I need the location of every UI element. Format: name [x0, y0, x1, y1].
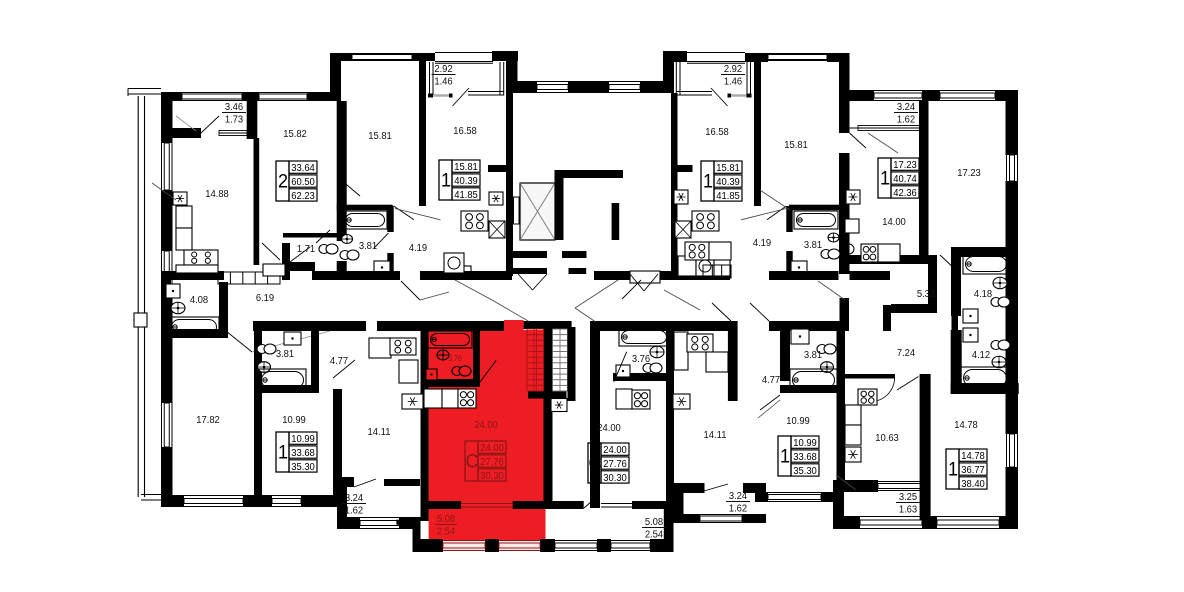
svg-text:14.11: 14.11 [704, 430, 727, 442]
svg-text:3.81: 3.81 [359, 241, 378, 253]
svg-text:4.08: 4.08 [190, 295, 209, 307]
svg-text:33.64: 33.64 [291, 163, 315, 175]
svg-text:30.30: 30.30 [603, 472, 627, 484]
svg-text:10.99: 10.99 [793, 438, 817, 450]
svg-text:16.58: 16.58 [705, 127, 729, 139]
svg-text:15.81: 15.81 [368, 131, 392, 143]
svg-text:3.25: 3.25 [899, 492, 918, 504]
svg-text:3.24: 3.24 [345, 493, 364, 505]
svg-text:4.12: 4.12 [972, 350, 991, 362]
svg-text:40.74: 40.74 [893, 173, 917, 185]
svg-text:6.19: 6.19 [256, 293, 275, 305]
svg-text:C: C [588, 452, 601, 474]
svg-text:1: 1 [780, 445, 790, 467]
svg-text:3.24: 3.24 [729, 491, 748, 503]
svg-text:1: 1 [278, 441, 288, 463]
svg-text:4.77: 4.77 [330, 356, 349, 368]
svg-text:40.39: 40.39 [454, 175, 478, 187]
svg-text:14.88: 14.88 [205, 189, 229, 201]
svg-text:15.81: 15.81 [784, 140, 808, 152]
svg-text:17.23: 17.23 [957, 168, 981, 180]
svg-text:1.46: 1.46 [724, 76, 743, 88]
svg-text:27.76: 27.76 [480, 456, 504, 468]
svg-text:30.30: 30.30 [480, 470, 504, 482]
svg-text:16.58: 16.58 [453, 126, 477, 138]
svg-text:24.00: 24.00 [480, 443, 504, 455]
svg-text:2.92: 2.92 [434, 64, 453, 76]
svg-text:42.36: 42.36 [893, 187, 917, 199]
svg-text:3.81: 3.81 [804, 240, 823, 252]
svg-text:41.85: 41.85 [716, 190, 740, 202]
svg-text:15.81: 15.81 [454, 162, 478, 174]
svg-text:14.11: 14.11 [368, 427, 391, 439]
svg-text:5.08: 5.08 [645, 517, 664, 529]
svg-text:2: 2 [278, 170, 288, 192]
svg-text:1.71: 1.71 [297, 244, 316, 256]
svg-text:2.54: 2.54 [437, 526, 456, 538]
svg-text:24.00: 24.00 [597, 423, 621, 435]
svg-text:17.23: 17.23 [893, 160, 917, 172]
svg-text:17.82: 17.82 [196, 415, 220, 427]
svg-text:10.63: 10.63 [875, 433, 899, 445]
svg-text:35.30: 35.30 [793, 465, 817, 477]
svg-text:1: 1 [880, 167, 890, 189]
svg-text:4.19: 4.19 [409, 243, 428, 255]
svg-text:36.77: 36.77 [961, 464, 985, 476]
svg-text:3.76: 3.76 [448, 354, 462, 363]
svg-text:4.77: 4.77 [762, 375, 781, 387]
svg-text:3.81: 3.81 [276, 349, 295, 361]
svg-text:5.33: 5.33 [917, 289, 936, 301]
svg-text:2.54: 2.54 [645, 529, 664, 541]
svg-text:1.62: 1.62 [729, 503, 748, 515]
svg-text:1.46: 1.46 [434, 76, 453, 88]
svg-text:3.81: 3.81 [804, 350, 823, 362]
svg-text:1.62: 1.62 [345, 505, 364, 517]
svg-text:15.81: 15.81 [716, 163, 740, 175]
svg-text:27.76: 27.76 [603, 458, 627, 470]
svg-text:33.68: 33.68 [793, 451, 817, 463]
svg-text:5.08: 5.08 [437, 514, 456, 526]
svg-text:3.24: 3.24 [897, 102, 916, 114]
svg-text:1: 1 [441, 169, 451, 191]
svg-text:1: 1 [948, 458, 958, 480]
svg-text:4.19: 4.19 [753, 238, 772, 250]
svg-text:24.00: 24.00 [474, 420, 498, 432]
svg-text:1: 1 [703, 170, 713, 192]
svg-text:14.78: 14.78 [961, 451, 985, 463]
svg-text:62.23: 62.23 [291, 190, 315, 202]
svg-text:1.62: 1.62 [897, 114, 916, 126]
svg-text:3.46: 3.46 [225, 102, 244, 114]
svg-text:15.82: 15.82 [283, 129, 307, 141]
svg-text:1.73: 1.73 [225, 114, 244, 126]
svg-text:10.99: 10.99 [282, 415, 306, 427]
svg-text:33.68: 33.68 [291, 447, 315, 459]
svg-text:41.85: 41.85 [454, 189, 478, 201]
svg-text:40.39: 40.39 [716, 176, 740, 188]
svg-text:C: C [465, 450, 478, 472]
svg-text:10.99: 10.99 [291, 434, 315, 446]
svg-text:24.00: 24.00 [603, 445, 627, 457]
svg-text:1.63: 1.63 [899, 504, 918, 516]
svg-text:10.99: 10.99 [786, 416, 810, 428]
svg-text:4.18: 4.18 [974, 289, 993, 301]
svg-text:35.30: 35.30 [291, 461, 315, 473]
svg-text:14.00: 14.00 [882, 217, 906, 229]
svg-text:7.24: 7.24 [897, 348, 916, 360]
svg-text:38.40: 38.40 [961, 478, 985, 490]
svg-text:60.50: 60.50 [291, 176, 315, 188]
svg-text:14.78: 14.78 [954, 420, 978, 432]
svg-text:3.76: 3.76 [632, 354, 651, 366]
svg-text:2.92: 2.92 [724, 64, 743, 76]
